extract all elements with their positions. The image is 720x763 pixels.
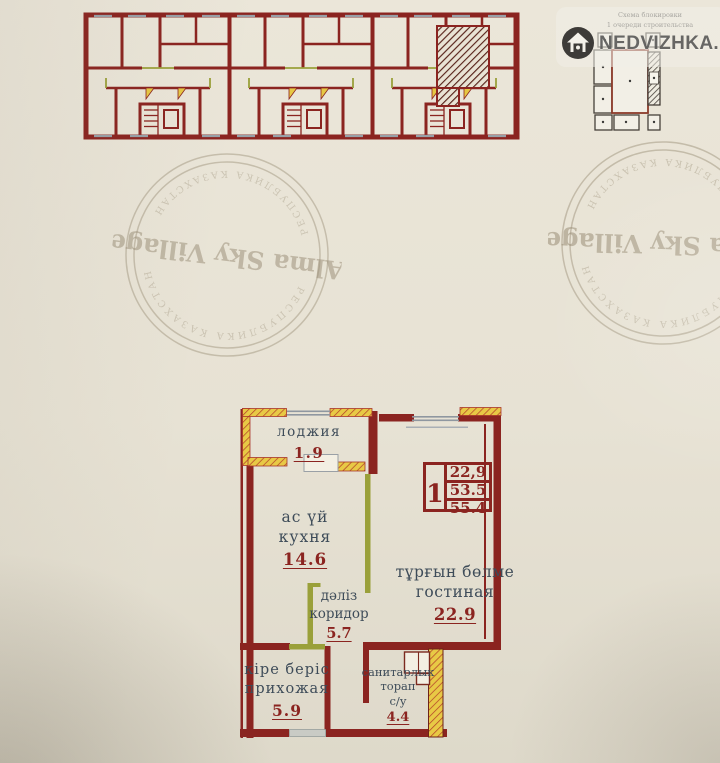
highlighted-unit-hatch bbox=[437, 26, 489, 106]
room-area: 1.9 bbox=[294, 444, 325, 464]
room-name: лоджия bbox=[277, 424, 341, 442]
svg-text:РЕСПУБЛИКА КАЗАХСТАН: РЕСПУБЛИКА КАЗАХСТАН bbox=[583, 153, 720, 218]
building-floor-strip bbox=[83, 10, 523, 143]
stamp-right-ring-text: РЕСПУБЛИКА КАЗАХСТАН bbox=[578, 261, 720, 332]
stamp-right-ring-text: РЕСПУБЛИКА КАЗАХСТАН bbox=[583, 153, 720, 218]
room-area: 4.4 bbox=[387, 710, 410, 726]
stamp-left-title: Alma Sky Village bbox=[108, 228, 347, 286]
info-rooms-count: 1 bbox=[426, 465, 447, 509]
room-name: прихожая bbox=[244, 680, 330, 699]
room-label-corridor: дәліз коридор 5.7 bbox=[309, 588, 368, 644]
room-label-living: тұрғын бөлме гостиная 22.9 bbox=[396, 562, 515, 626]
apartment-info-table: 1 22,9 53.5 55.4 bbox=[423, 462, 492, 512]
svg-text:РЕСПУБЛИКА КАЗАХСТАН: РЕСПУБЛИКА КАЗАХСТАН bbox=[150, 159, 318, 238]
stamp-left: РЕСПУБЛИКА КАЗАХСТАН РЕСПУБЛИКА КАЗАХСТА… bbox=[99, 127, 355, 383]
room-name: ас үй bbox=[279, 507, 332, 527]
room-label-loggia: лоджия 1.9 bbox=[277, 424, 341, 463]
room-label-bathroom: санитарлык торап с/у 4.4 bbox=[362, 665, 435, 726]
svg-text:РЕСПУБЛИКА КАЗАХСТАН: РЕСПУБЛИКА КАЗАХСТАН bbox=[135, 266, 307, 351]
room-label-entry: кіре беріс прихожая 5.9 bbox=[244, 661, 330, 722]
room-name: кухня bbox=[279, 527, 332, 547]
entrance-door bbox=[290, 730, 326, 737]
info-total-area: 55.4 bbox=[447, 498, 489, 516]
room-name: дәліз bbox=[309, 588, 368, 606]
stamp-right-title: Alma Sky Village bbox=[545, 226, 720, 263]
room-name: с/у bbox=[362, 694, 435, 708]
watermark-brand: NEDVIZHKA.KZ bbox=[599, 33, 720, 55]
info-living-area: 22,9 bbox=[447, 465, 489, 480]
svg-text:РЕСПУБЛИКА КАЗАХСТАН: РЕСПУБЛИКА КАЗАХСТАН bbox=[578, 261, 720, 332]
room-name: кіре беріс bbox=[244, 661, 330, 680]
room-area: 5.9 bbox=[272, 701, 302, 721]
stamp-right: РЕСПУБЛИКА КАЗАХСТАН РЕСПУБЛИКА КАЗАХСТА… bbox=[544, 124, 720, 362]
room-name: тұрғын бөлме bbox=[396, 562, 515, 582]
room-label-kitchen: ас үй кухня 14.6 bbox=[279, 507, 332, 571]
room-name: санитарлык bbox=[362, 665, 435, 679]
room-area: 14.6 bbox=[283, 549, 327, 570]
room-area: 5.7 bbox=[326, 625, 351, 644]
room-area: 22.9 bbox=[434, 604, 476, 625]
house-icon bbox=[560, 25, 596, 61]
floor-plan-photo: Схема блокировки 1 очереди строительства… bbox=[0, 0, 720, 763]
room-name: гостиная bbox=[396, 582, 515, 602]
room-name: торап bbox=[362, 679, 435, 693]
stamp-left-ring-text: РЕСПУБЛИКА КАЗАХСТАН bbox=[135, 266, 307, 351]
info-reduced-area: 53.5 bbox=[447, 480, 489, 498]
stamp-left-ring-text: РЕСПУБЛИКА КАЗАХСТАН bbox=[150, 159, 318, 238]
room-name: коридор bbox=[309, 606, 368, 624]
